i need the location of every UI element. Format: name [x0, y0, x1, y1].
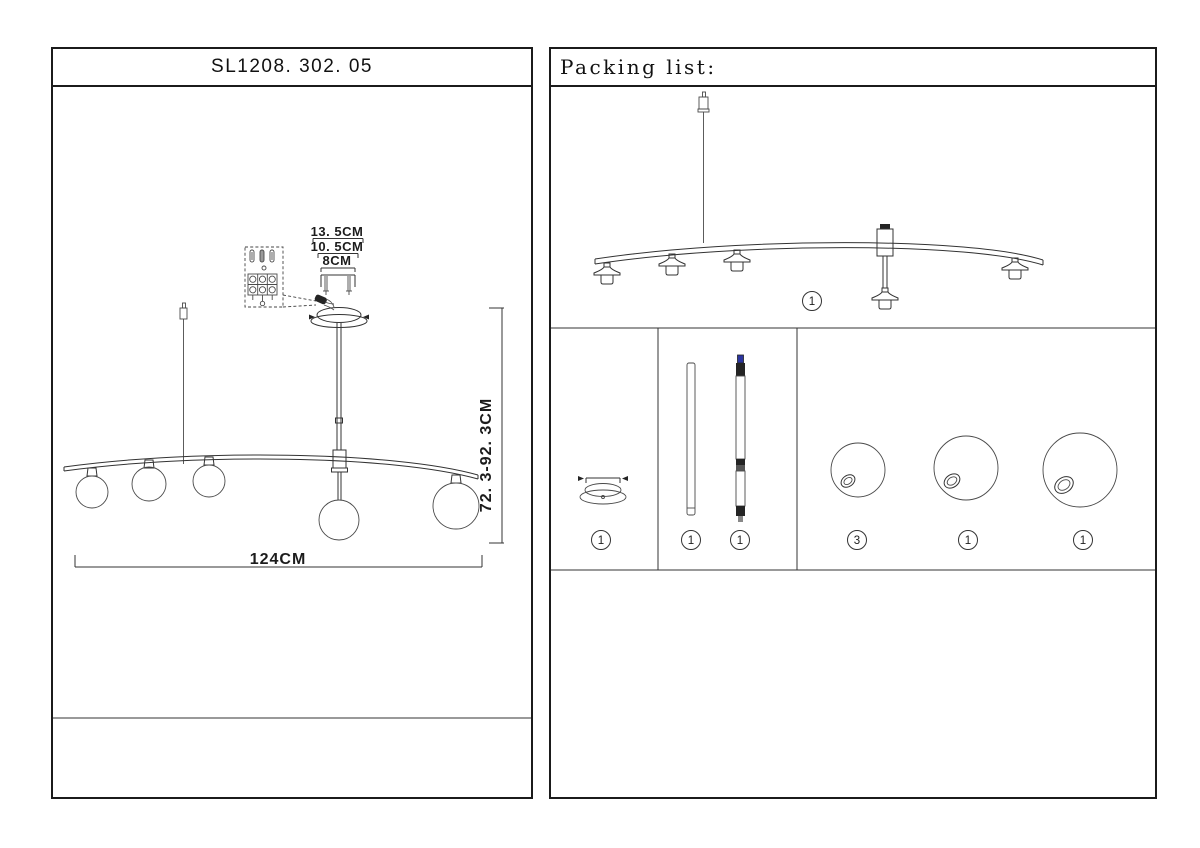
globe-parts: 3 1 1 [831, 433, 1117, 550]
packing-list-drawing: 1 1 [551, 87, 1155, 795]
packing-list-title: Packing list: [551, 55, 717, 79]
terminal-block-detail [245, 247, 316, 307]
dim-canopy-inner: 10. 5CM [311, 239, 364, 254]
qty-badge-rod-connector: 1 [731, 531, 750, 550]
qty-badge-globe-medium: 1 [959, 531, 978, 550]
lamp-socket [872, 288, 898, 309]
lamp-socket [659, 254, 685, 275]
canopy-part: 1 [578, 476, 628, 550]
qty-badge-globe-large: 1 [1074, 531, 1093, 550]
canopy-dimensions: 13. 5CM 10. 5CM 8CM [311, 224, 364, 295]
model-number: SL1208. 302. 05 [211, 56, 373, 78]
suspension-wire [180, 303, 187, 464]
left-arrow-icon [578, 476, 584, 481]
ceiling-canopy [309, 308, 369, 328]
lamp-socket [724, 250, 750, 271]
rod-with-connector [736, 355, 745, 522]
dim-screw-pitch: 8CM [323, 253, 352, 268]
center-rod [332, 323, 348, 500]
lamp-socket [594, 263, 620, 284]
rod-parts: 1 1 [682, 355, 750, 550]
dim-fixture-length: 124CM [250, 551, 307, 568]
product-drawing-panel: SL1208. 302. 05 [51, 47, 533, 799]
parts-grid [551, 328, 1155, 570]
manual-page: SL1208. 302. 05 [0, 0, 1200, 848]
qty-globe-small: 3 [854, 535, 860, 547]
blue-connector-cap [738, 355, 744, 363]
qty-badge-bar-assembly: 1 [803, 292, 822, 311]
qty-badge-globe-small: 3 [848, 531, 867, 550]
glass-globes [76, 457, 479, 540]
qty-badge-canopy: 1 [592, 531, 611, 550]
packing-list-header: Packing list: [551, 49, 1155, 87]
lamp-socket [1002, 258, 1028, 279]
right-arrow-icon [622, 476, 628, 481]
qty-bar-assembly: 1 [809, 296, 815, 308]
model-number-header: SL1208. 302. 05 [53, 49, 531, 87]
height-dimension: 72. 3-92. 3CM [478, 308, 504, 543]
qty-globe-large: 1 [1080, 535, 1086, 547]
dim-drop-height: 72. 3-92. 3CM [478, 398, 495, 512]
curved-bar [64, 455, 478, 479]
bar-assembly-part: 1 [594, 92, 1043, 311]
qty-globe-medium: 1 [965, 535, 971, 547]
qty-rod-connector: 1 [737, 535, 743, 547]
qty-rod-plain: 1 [688, 535, 694, 547]
dim-canopy-outer: 13. 5CM [311, 224, 364, 239]
dimension-drawing: 13. 5CM 10. 5CM 8CM [53, 87, 531, 795]
length-dimension: 124CM [75, 551, 482, 568]
packing-list-panel: Packing list: [549, 47, 1157, 799]
qty-badge-rod-plain: 1 [682, 531, 701, 550]
qty-canopy: 1 [598, 535, 604, 547]
